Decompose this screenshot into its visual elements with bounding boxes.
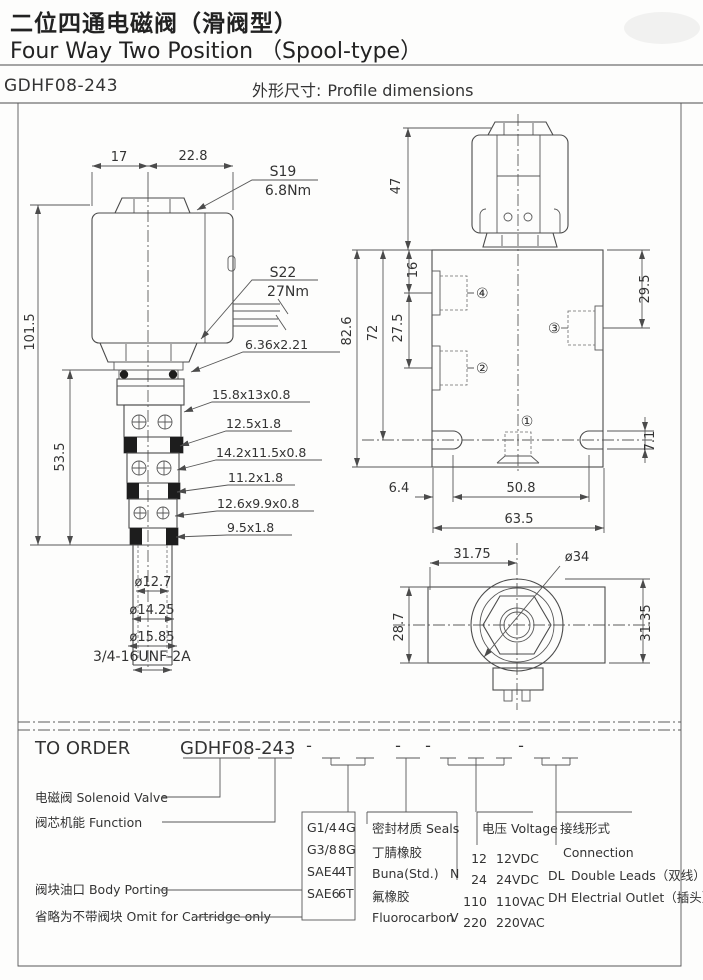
dim-47: 47 <box>389 178 404 195</box>
connection-name-0: Double Leads（双线） <box>571 868 703 883</box>
porting-name-0: G1/4 <box>307 820 337 835</box>
voltage-title: 电压 Voltage <box>482 821 558 836</box>
fork-porting <box>322 758 374 812</box>
voltage-name-3: 220VAC <box>496 915 545 930</box>
dia-14-25: ø14.25 <box>129 603 174 618</box>
wire-leads <box>233 299 288 330</box>
dim-29-5: 29.5 <box>638 275 653 304</box>
dia-12-7: ø12.7 <box>135 575 172 590</box>
valve-body <box>432 250 603 467</box>
dim-82-6: 82.6 <box>340 317 355 346</box>
seal-zh-0: 丁腈橡胶 <box>372 845 422 860</box>
voltage-name-1: 24VDC <box>496 872 539 887</box>
voltage-code-3: 220 <box>463 915 487 930</box>
hex-s22-torque: 27Nm <box>267 284 309 300</box>
label-function: 阀芯机能 Function <box>35 815 142 830</box>
ring3-label: 12.6x9.9x0.8 <box>217 496 299 511</box>
dia-15-85: ø15.85 <box>129 630 174 645</box>
seal-6-36-label: 6.36x2.21 <box>245 337 308 352</box>
dim-22-8: 22.8 <box>179 149 208 164</box>
connection-code-0: DL <box>548 868 565 883</box>
connection-title-zh: 接线形式 <box>560 821 611 836</box>
dim-28-7: 28.7 <box>392 613 407 642</box>
order-model: GDHF08-243 <box>180 738 295 759</box>
dim-72: 72 <box>366 325 381 342</box>
label-omit: 省略为不带阀块 Omit for Cartridge only <box>35 909 272 924</box>
hex-s19-label: S19 <box>270 164 297 180</box>
porting-code-3: 6T <box>338 886 354 901</box>
dia-34: ø34 <box>565 550 590 565</box>
stem-seals <box>396 758 420 812</box>
dim-31-75: 31.75 <box>453 547 490 562</box>
oring2-label: 11.2x1.8 <box>228 470 283 485</box>
porting-name-2: SAE4 <box>307 864 340 879</box>
coil-nut <box>100 343 197 379</box>
dim-50-8: 50.8 <box>507 481 536 496</box>
order-dash-2: - <box>395 736 401 755</box>
cartridge <box>117 379 184 665</box>
dim-7-1: 7.1 <box>643 431 658 452</box>
porting-name-1: G3/8 <box>307 842 337 857</box>
dim-27-5: 27.5 <box>391 314 406 343</box>
dim-63-5: 63.5 <box>505 512 534 527</box>
port3-label: ③ <box>548 321 561 337</box>
connector <box>493 668 543 701</box>
datasheet-page: 二位四通电磁阀（滑阀型） Four Way Two Position （Spoo… <box>0 0 703 980</box>
dim-31-35: 31.35 <box>639 604 654 641</box>
porting-code-0: 4G <box>338 820 356 835</box>
connection-name-1: Electrial Outlet（插头） <box>571 890 703 905</box>
seal-en-0: Buna(Std.) <box>372 866 439 881</box>
drawing-canvas: 17 22.8 S19 6.8Nm S22 27Nm <box>0 0 703 980</box>
voltage-name-2: 110VAC <box>496 894 545 909</box>
seal-code-0: N <box>450 866 459 881</box>
porting-code-1: 8G <box>338 842 356 857</box>
order-dash-1: - <box>306 736 312 755</box>
dim-17: 17 <box>111 150 128 165</box>
voltage-code-1: 24 <box>471 872 487 887</box>
order-section: TO ORDER GDHF08-243 - - - - 电磁阀 Solenoid… <box>34 736 703 930</box>
ring1-label: 15.8x13x0.8 <box>212 387 290 402</box>
scan-smudge <box>624 12 700 44</box>
order-title: TO ORDER <box>34 738 130 759</box>
label-solenoid: 电磁阀 Solenoid Valve <box>35 790 168 805</box>
dim-6-4: 6.4 <box>389 481 410 496</box>
voltage-code-0: 12 <box>471 851 487 866</box>
connection-title-en: Connection <box>563 845 634 860</box>
coil-front <box>472 122 568 247</box>
dim-53-5: 53.5 <box>53 443 68 472</box>
port2-label: ② <box>476 361 489 377</box>
hex-s22-label: S22 <box>270 265 297 281</box>
section-divider <box>18 722 681 730</box>
voltage-name-0: 12VDC <box>496 851 539 866</box>
thread-label: 3/4-16UNF-2A <box>93 649 191 665</box>
fork-voltage <box>440 758 512 812</box>
seal-code-1: V <box>450 910 459 925</box>
coil-notch <box>228 256 235 271</box>
dim-16: 16 <box>406 262 421 279</box>
label-porting: 阀块油口 Body Porting <box>35 882 169 897</box>
order-dash-4: - <box>518 736 524 755</box>
connection-code-1: DH <box>548 890 567 905</box>
oring3-label: 9.5x1.8 <box>227 520 274 535</box>
hex-s19-torque: 6.8Nm <box>265 183 311 199</box>
porting-name-3: SAE6 <box>307 886 340 901</box>
dim-101-5: 101.5 <box>23 313 38 350</box>
seal-en-1: Fluorocarbon <box>372 910 454 925</box>
fork-connection <box>534 758 578 812</box>
side-view: 17 22.8 S19 6.8Nm S22 27Nm <box>23 149 340 670</box>
top-view: 31.75 ø34 28.7 31.35 <box>392 543 654 710</box>
order-dash-3: - <box>425 736 431 755</box>
oring1-label: 12.5x1.8 <box>226 416 281 431</box>
voltage-code-2: 110 <box>463 894 487 909</box>
port1-label: ① <box>521 414 534 430</box>
port3-fitting <box>561 306 603 350</box>
ring2-label: 14.2x11.5x0.8 <box>216 445 306 460</box>
porting-code-2: 4T <box>338 864 354 879</box>
seals-title: 密封材质 Seals <box>372 821 459 836</box>
port4-label: ④ <box>476 286 489 302</box>
coil-side <box>92 198 235 343</box>
leader-model <box>162 758 275 822</box>
seal-zh-1: 氟橡胶 <box>372 889 410 904</box>
front-view: ④ ② ③ ① 47 16 <box>340 114 658 533</box>
